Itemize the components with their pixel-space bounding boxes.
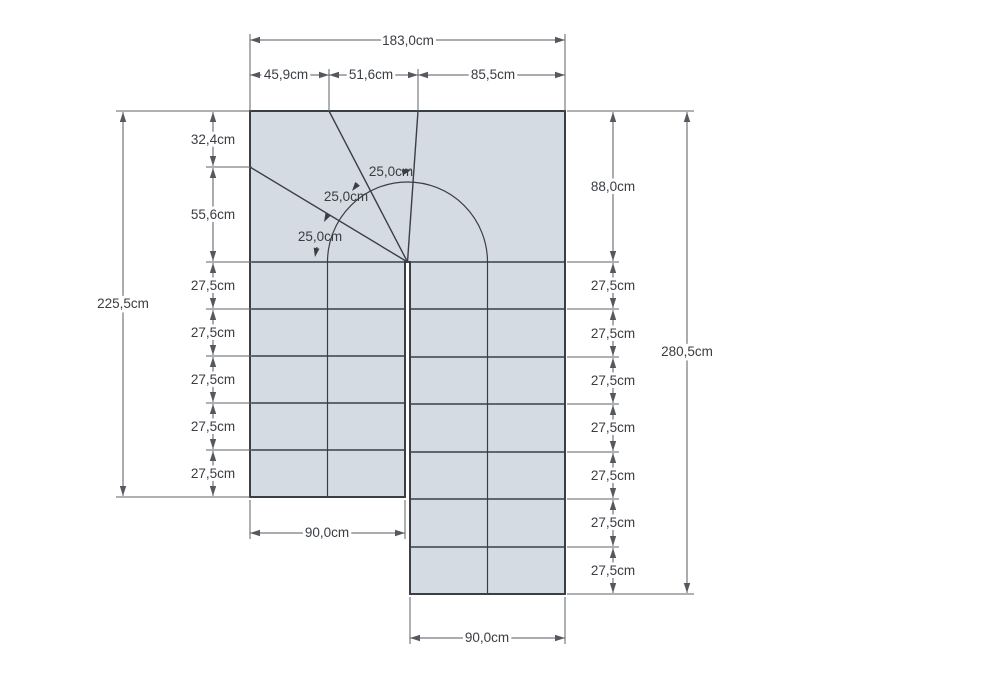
dim-left-segment-label: 55,6cm [191, 207, 235, 222]
dim-bottom-left-width-label: 90,0cm [305, 525, 349, 540]
dim-right-segment-label: 27,5cm [591, 278, 635, 293]
walkline-tread-depth-label: 25,0cm [324, 189, 368, 204]
dim-left-segment-label: 32,4cm [191, 132, 235, 147]
dim-bottom-right-width-label: 90,0cm [465, 630, 509, 645]
dim-right-segment-label: 27,5cm [591, 515, 635, 530]
stair-plan-canvas: 25,0cm 25,0cm 25,0cm [0, 0, 1000, 677]
stair-plan-svg: 25,0cm 25,0cm 25,0cm [0, 0, 1000, 677]
dim-right-segment-label: 27,5cm [591, 420, 635, 435]
walkline-tread-depth-label: 25,0cm [369, 164, 413, 179]
dim-top-total-label: 183,0cm [382, 33, 434, 48]
staircase-outline [250, 111, 565, 594]
dim-top-segment-label: 85,5cm [471, 67, 515, 82]
dim-left-segment-label: 27,5cm [191, 372, 235, 387]
dim-left-segment-label: 27,5cm [191, 325, 235, 340]
dim-right-segment-label: 27,5cm [591, 326, 635, 341]
walkline-tread-depth-label: 25,0cm [298, 229, 342, 244]
dim-top-segment-label: 45,9cm [264, 67, 308, 82]
dim-right-segment-label: 27,5cm [591, 563, 635, 578]
dim-right-segment-label: 88,0cm [591, 179, 635, 194]
dim-left-total-label: 225,5cm [97, 296, 149, 311]
dim-right-segment-label: 27,5cm [591, 373, 635, 388]
dim-right-total-label: 280,5cm [661, 344, 713, 359]
dim-top-segment-label: 51,6cm [349, 67, 393, 82]
dim-right-segment-label: 27,5cm [591, 468, 635, 483]
dim-left-segment-label: 27,5cm [191, 466, 235, 481]
dim-left-segment-label: 27,5cm [191, 419, 235, 434]
dim-left-segment-label: 27,5cm [191, 278, 235, 293]
